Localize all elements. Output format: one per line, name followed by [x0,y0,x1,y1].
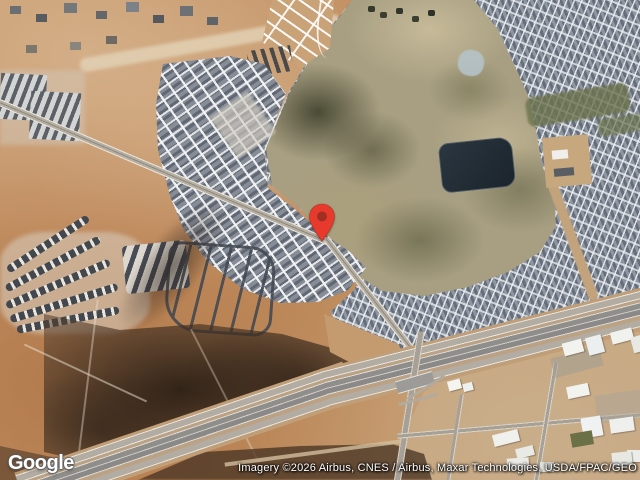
attribution-text: Imagery ©2026 Airbus, CNES / Airbus, Max… [238,462,637,474]
location-pin-icon[interactable] [308,203,336,243]
amenity-lot [542,134,592,188]
rural-houses [10,6,21,14]
tree-cluster [368,6,375,12]
building [552,149,569,159]
google-logo[interactable]: Google [8,452,74,475]
pond [438,136,517,193]
map-canvas[interactable]: Google Imagery ©2026 Airbus, CNES / Airb… [0,0,640,480]
